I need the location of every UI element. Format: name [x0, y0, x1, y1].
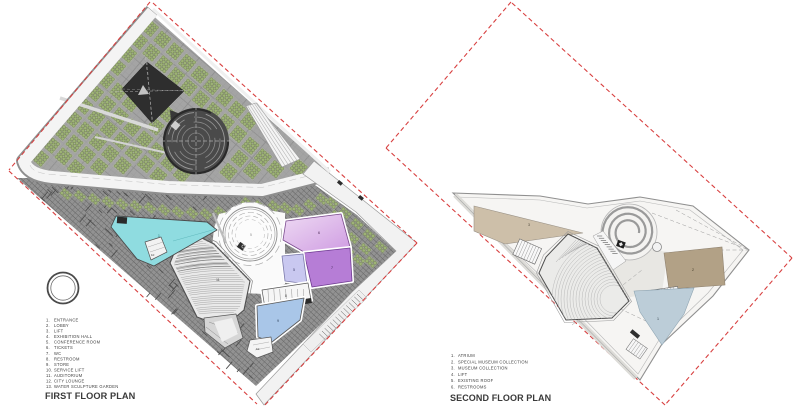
svg-text:11.: 11.	[46, 373, 52, 378]
svg-text:LIFT: LIFT	[54, 329, 64, 334]
svg-text:3.: 3.	[451, 366, 455, 371]
svg-text:TICKETS: TICKETS	[54, 345, 73, 350]
svg-text:ENTRANCE: ENTRANCE	[54, 318, 79, 323]
svg-text:AUDITORIUM: AUDITORIUM	[54, 373, 83, 378]
svg-text:CITY LOUNGE: CITY LOUNGE	[54, 379, 84, 384]
svg-text:EXISTING ROOF: EXISTING ROOF	[458, 378, 494, 383]
svg-text:LOBBY: LOBBY	[54, 323, 69, 328]
svg-text:WATER SCULPTURE GARDEN: WATER SCULPTURE GARDEN	[54, 384, 118, 389]
svg-text:RESTROOM: RESTROOM	[54, 356, 80, 361]
svg-text:10: 10	[151, 253, 155, 257]
svg-text:5: 5	[250, 233, 252, 237]
svg-text:2.: 2.	[46, 323, 50, 328]
svg-text:3.: 3.	[46, 329, 50, 334]
svg-text:1.: 1.	[46, 318, 50, 323]
svg-text:6.: 6.	[46, 345, 50, 350]
svg-text:5.: 5.	[46, 340, 50, 345]
svg-text:7.: 7.	[46, 351, 50, 356]
svg-text:12.: 12.	[46, 379, 52, 384]
svg-text:CONFERENCE ROOM: CONFERENCE ROOM	[54, 340, 101, 345]
svg-text:2: 2	[692, 268, 694, 272]
svg-text:5: 5	[293, 268, 295, 272]
svg-text:ATRIUM: ATRIUM	[458, 353, 475, 358]
svg-text:4.: 4.	[451, 372, 455, 377]
svg-text:6.: 6.	[451, 385, 455, 390]
svg-text:8.: 8.	[46, 356, 50, 361]
svg-text:9: 9	[277, 319, 279, 323]
svg-text:1.: 1.	[451, 353, 455, 358]
svg-text:RESTROOMS: RESTROOMS	[458, 385, 487, 390]
svg-text:8: 8	[285, 294, 287, 298]
svg-text:10: 10	[256, 347, 260, 351]
svg-text:9.: 9.	[46, 362, 50, 367]
svg-text:EXHIBITION HALL: EXHIBITION HALL	[54, 334, 93, 339]
svg-text:5.: 5.	[451, 378, 455, 383]
svg-text:10.: 10.	[46, 367, 52, 372]
svg-text:6: 6	[318, 231, 320, 235]
svg-text:3: 3	[528, 223, 530, 227]
svg-text:4.: 4.	[46, 334, 50, 339]
svg-text:7: 7	[331, 266, 333, 270]
svg-text:13.: 13.	[46, 384, 52, 389]
svg-text:2.: 2.	[451, 359, 455, 364]
svg-text:1: 1	[657, 317, 659, 321]
svg-text:MUSEUM COLLECTION: MUSEUM COLLECTION	[458, 366, 508, 371]
svg-text:SPECIAL MUSEUM COLLECTION: SPECIAL MUSEUM COLLECTION	[458, 359, 528, 364]
svg-text:WC: WC	[54, 351, 61, 356]
svg-text:SECOND FLOOR PLAN: SECOND FLOOR PLAN	[450, 393, 551, 403]
svg-text:LIFT: LIFT	[458, 372, 468, 377]
svg-text:STORE: STORE	[54, 362, 69, 367]
svg-text:11: 11	[216, 278, 220, 282]
svg-text:FIRST FLOOR PLAN: FIRST FLOOR PLAN	[45, 391, 136, 401]
svg-text:SERVICE LIFT: SERVICE LIFT	[54, 367, 85, 372]
